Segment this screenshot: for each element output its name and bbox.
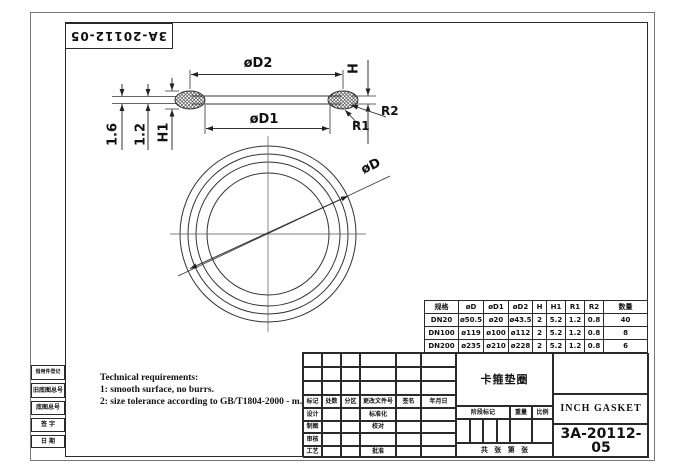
spec-cell: 1.2	[566, 340, 585, 353]
role-design: 设计	[303, 408, 322, 421]
spec-cell: 6	[604, 340, 648, 353]
rev-header-mark: 标记	[303, 395, 322, 408]
rev-cell	[396, 381, 421, 395]
spec-cell: 0.8	[585, 314, 604, 327]
dim-label-1-2: 1.2	[135, 122, 148, 148]
rev-cell	[303, 367, 322, 381]
sig-cell	[341, 446, 360, 458]
dim-label-1-6: 1.6	[107, 122, 120, 148]
sig-cell	[396, 408, 421, 421]
role-proofread: 校对	[360, 421, 396, 433]
role-check: 审核	[303, 433, 322, 446]
rev-cell	[303, 353, 322, 367]
spec-cell: 5.2	[547, 340, 566, 353]
rev-cell	[303, 381, 322, 395]
margin-label: 日 期	[41, 439, 55, 445]
spec-cell: 2	[533, 314, 547, 327]
spec-cell: 1.2	[566, 314, 585, 327]
rev-cell	[360, 367, 396, 381]
spec-cell: DN100	[425, 327, 459, 340]
sig-cell	[396, 433, 421, 446]
rev-header-date: 年月日	[421, 395, 456, 408]
spec-cell: ø228	[509, 340, 533, 353]
margin-cell-signature: 签 字	[31, 418, 65, 432]
sig-cell	[396, 421, 421, 433]
sheet-info: 共 张 第 张	[481, 447, 528, 454]
margin-label: 旧底图总号	[33, 388, 63, 394]
spec-header: H	[533, 301, 547, 314]
rev-cell	[396, 367, 421, 381]
spec-cell: ø20	[484, 314, 509, 327]
dim-label-r2: R2	[381, 105, 399, 117]
spec-header: øD	[459, 301, 484, 314]
rev-cell	[341, 367, 360, 381]
rev-cell	[322, 367, 341, 381]
spec-cell: ø119	[459, 327, 484, 340]
technical-requirements: Technical requirements: 1: smooth surfac…	[100, 372, 302, 408]
spec-cell: 2	[533, 340, 547, 353]
dim-label-h1: H1	[158, 123, 171, 143]
role-draft: 制图	[303, 421, 322, 433]
spec-cell: DN20	[425, 314, 459, 327]
weight-label: 重量	[510, 406, 532, 419]
spec-cell: 40	[604, 314, 648, 327]
margin-cell-old-master: 旧底图总号	[31, 383, 65, 398]
spec-cell: ø112	[509, 327, 533, 340]
spec-table: 规格 øD øD1 øD2 H H1 R1 R2 数量 DN20 ø50.5 ø…	[424, 300, 648, 353]
stage-box	[470, 419, 483, 443]
rev-header-count: 处数	[322, 395, 341, 408]
company-cell	[553, 353, 649, 394]
spec-header: øD1	[484, 301, 509, 314]
drawing-title-cn-cell: 卡箍垫圈	[456, 353, 553, 406]
rev-header-sign: 签名	[396, 395, 421, 408]
dim-label-d1: øD1	[244, 113, 284, 126]
spec-row-dn20: DN20 ø50.5 ø20 ø43.5 2 5.2 1.2 0.8 40	[425, 314, 648, 327]
spec-cell: 0.8	[585, 327, 604, 340]
rev-cell	[360, 381, 396, 395]
rev-header-zone: 分区	[341, 395, 360, 408]
rev-cell	[421, 367, 456, 381]
role-standardization: 标准化	[360, 408, 396, 421]
sig-cell	[322, 446, 341, 458]
spec-header: øD2	[509, 301, 533, 314]
margin-cell-date: 日 期	[31, 435, 65, 448]
rev-header-doc-no: 更改文件号	[360, 395, 396, 408]
part-number-cell: 3A-20112-05	[553, 424, 649, 458]
spec-cell: 0.8	[585, 340, 604, 353]
spec-header: 数量	[604, 301, 648, 314]
spec-cell: 2	[533, 327, 547, 340]
role-approve: 批准	[360, 446, 396, 458]
margin-cell-borrowed: 借用件登记	[31, 365, 65, 380]
drawing-title-cn: 卡箍垫圈	[481, 374, 529, 385]
spec-cell: 5.2	[547, 314, 566, 327]
rev-cell	[421, 353, 456, 367]
part-number-top: 3A-20112-05	[70, 30, 167, 42]
rev-cell	[341, 381, 360, 395]
drawing-sheet: { "drawing": { "part_number_top": "3A-20…	[0, 0, 674, 471]
rev-cell	[341, 353, 360, 367]
rev-cell	[421, 381, 456, 395]
dim-label-d2: øD2	[238, 57, 278, 70]
drawing-title-en-cell: INCH GASKET	[553, 394, 649, 424]
sig-cell	[421, 446, 456, 458]
stage-mark-label: 阶段标记	[456, 406, 510, 419]
spec-cell: ø43.5	[509, 314, 533, 327]
spec-cell: 1.2	[566, 327, 585, 340]
spec-cell: ø50.5	[459, 314, 484, 327]
sig-cell	[360, 433, 396, 446]
sig-cell	[322, 408, 341, 421]
rev-cell	[360, 353, 396, 367]
margin-label: 借用件登记	[35, 370, 60, 375]
sig-cell	[322, 433, 341, 446]
rev-cell	[396, 353, 421, 367]
spec-header: R2	[585, 301, 604, 314]
sig-cell	[421, 408, 456, 421]
spec-cell: DN200	[425, 340, 459, 353]
scale-value-cell	[532, 419, 553, 443]
techreq-item: 1: smooth surface, no burrs.	[100, 384, 302, 396]
spec-row-dn200: DN200 ø235 ø210 ø228 2 5.2 1.2 0.8 6	[425, 340, 648, 353]
sig-cell	[322, 421, 341, 433]
sig-cell	[421, 433, 456, 446]
margin-label: 底图总号	[36, 405, 60, 411]
spec-header-row: 规格 øD øD1 øD2 H H1 R1 R2 数量	[425, 301, 648, 314]
spec-header: R1	[566, 301, 585, 314]
title-block: 标记 处数 分区 更改文件号 签名 年月日 设计 标准化 制图 校对 审核 工艺…	[302, 352, 648, 457]
part-number: 3A-20112-05	[554, 427, 648, 455]
sig-cell	[341, 421, 360, 433]
dim-label-r1: R1	[352, 120, 370, 132]
scale-label: 比例	[532, 406, 553, 419]
spec-header: H1	[547, 301, 566, 314]
sig-cell	[421, 421, 456, 433]
margin-label: 签 字	[41, 422, 55, 428]
spec-cell: 5.2	[547, 327, 566, 340]
sig-cell	[341, 433, 360, 446]
role-process: 工艺	[303, 446, 322, 458]
stage-box	[483, 419, 497, 443]
rev-cell	[322, 353, 341, 367]
sheet-info-cell: 共 张 第 张	[456, 443, 553, 458]
drawing-title-en: INCH GASKET	[560, 404, 641, 414]
dim-label-h: H	[348, 61, 361, 77]
sig-cell	[396, 446, 421, 458]
spec-cell: ø235	[459, 340, 484, 353]
sig-cell	[341, 408, 360, 421]
margin-cell-master: 底图总号	[31, 401, 65, 415]
spec-cell: ø100	[484, 327, 509, 340]
techreq-item: 2: size tolerance according to GB/T1804-…	[100, 396, 302, 408]
stage-box	[497, 419, 510, 443]
weight-value-cell	[510, 419, 532, 443]
part-number-top-box: 3A-20112-05	[65, 23, 173, 49]
spec-row-dn100: DN100 ø119 ø100 ø112 2 5.2 1.2 0.8 8	[425, 327, 648, 340]
techreq-title: Technical requirements:	[100, 372, 302, 384]
spec-header: 规格	[425, 301, 459, 314]
spec-cell: ø210	[484, 340, 509, 353]
rev-cell	[322, 381, 341, 395]
spec-cell: 8	[604, 327, 648, 340]
stage-box	[456, 419, 470, 443]
